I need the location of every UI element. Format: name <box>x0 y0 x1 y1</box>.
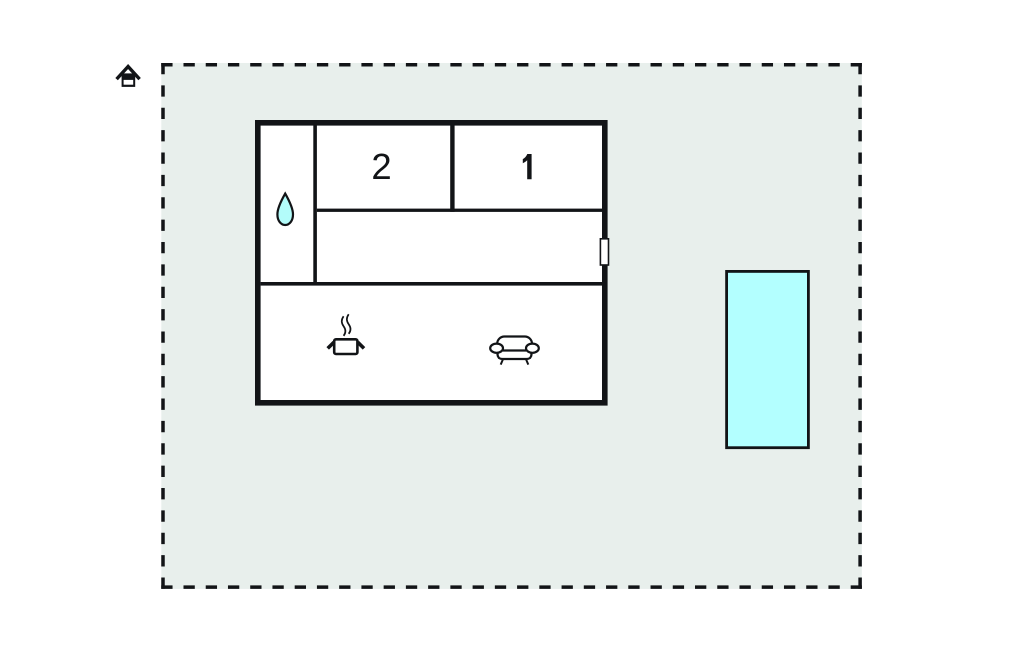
svg-text:2: 2 <box>371 146 391 187</box>
